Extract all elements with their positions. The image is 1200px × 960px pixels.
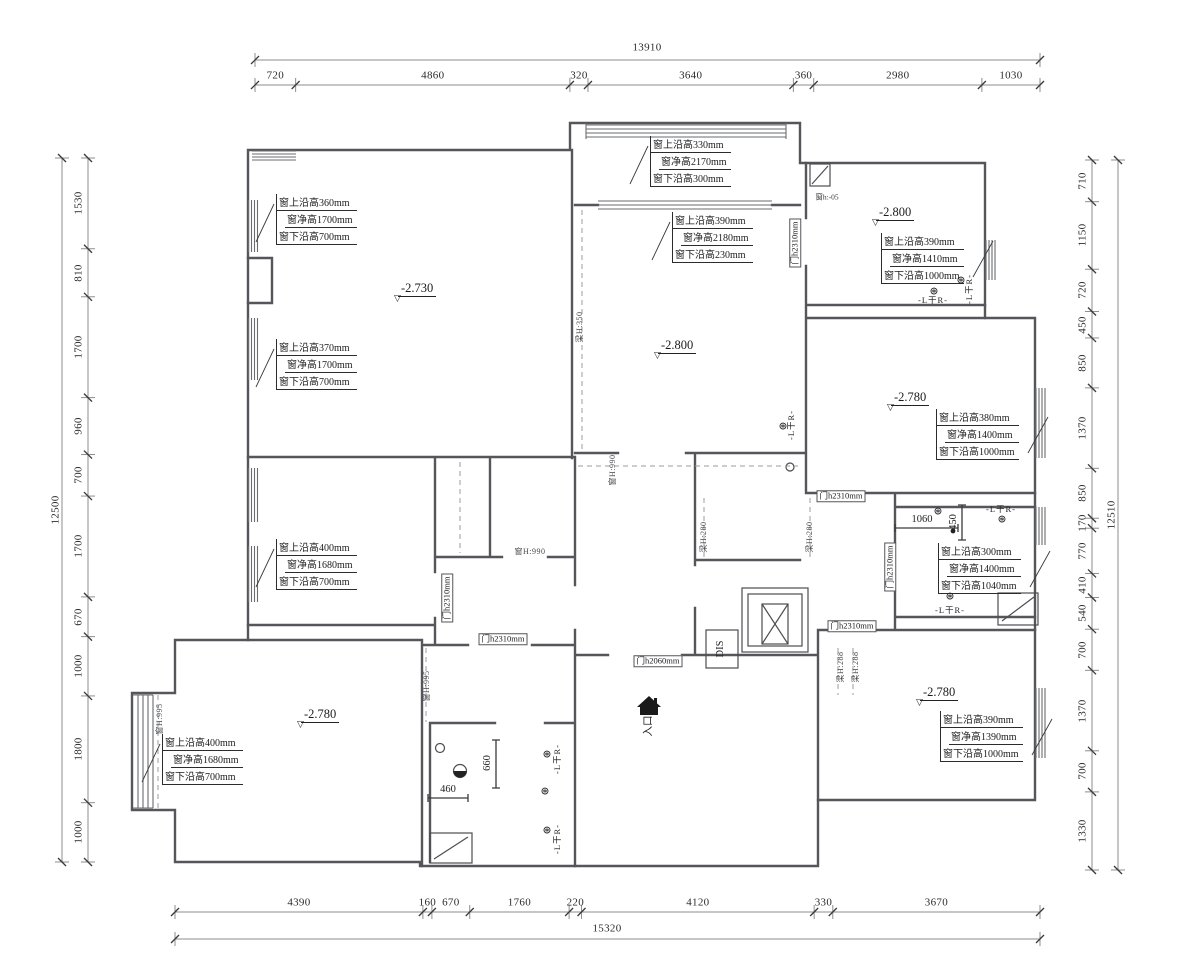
- window-note-line: 窗下沿高1000mm: [937, 443, 1019, 460]
- radiator-label: -L干R-: [965, 274, 974, 304]
- window-note-line: 窗净高2170mm: [659, 153, 731, 170]
- radiator-label: -L干R-: [935, 606, 965, 615]
- window-note-line: 窗上沿高370mm: [277, 339, 357, 356]
- dim-segment-label: 160: [419, 898, 436, 909]
- elevation-value: -2.780: [301, 707, 339, 723]
- dim-segment-label: 3640: [679, 71, 702, 82]
- beam-label: 梁H:288: [837, 652, 845, 683]
- elevation-marker: ▽-2.730: [398, 281, 436, 296]
- small-dim-label: 660: [483, 755, 494, 771]
- dim-total-label: 12500: [51, 496, 62, 525]
- dim-segment-label: 320: [570, 71, 587, 82]
- window-note-line: 窗上沿高390mm: [673, 212, 753, 229]
- dim-segment-label: 410: [1078, 577, 1089, 594]
- radiator-label: -L干R-: [787, 410, 796, 440]
- beam-label: 梁H:280: [806, 522, 814, 553]
- radiator-icon: ⊛: [945, 592, 954, 603]
- dim-segment-label: 1760: [508, 898, 531, 909]
- window-note-line: 窗上沿高380mm: [937, 409, 1019, 426]
- dim-segment-label: 3670: [925, 898, 948, 909]
- door-label: 门h2310mm: [817, 490, 866, 502]
- dim-segment-label: 1700: [74, 336, 85, 359]
- window-note: 窗上沿高390mm窗净高1410mm窗下沿高1000mm: [881, 233, 964, 284]
- dim-segment-label: 1150: [1078, 224, 1089, 247]
- window-note-line: 窗下沿高700mm: [163, 768, 243, 785]
- window-note: 窗上沿高300mm窗净高1400mm窗下沿高1040mm: [938, 543, 1021, 594]
- window-note: 窗上沿高380mm窗净高1400mm窗下沿高1000mm: [936, 409, 1019, 460]
- radiator-icon: ⊛: [997, 515, 1006, 526]
- small-dim-label: 1060: [912, 515, 933, 526]
- beam-label: 窗H:990: [609, 455, 617, 486]
- door-label: 门h2310mm: [789, 219, 801, 268]
- door-label: 门h2310mm: [441, 574, 453, 623]
- dim-total-label: 12510: [1107, 501, 1118, 530]
- elevation-triangle-icon: ▽: [872, 217, 879, 228]
- radiator-label: -L干R-: [986, 505, 1016, 514]
- elevation-value: -2.800: [876, 205, 914, 221]
- elevation-value: -2.730: [398, 281, 436, 297]
- dim-segment-label: 720: [1078, 282, 1089, 299]
- dim-segment-label: 700: [74, 467, 85, 484]
- dim-segment-label: 4390: [287, 898, 310, 909]
- window-note-line: 窗下沿高1000mm: [941, 745, 1023, 762]
- window-tag-label: 窗h:-05: [815, 193, 838, 201]
- window-note-line: 窗净高1410mm: [890, 250, 964, 267]
- dim-segment-label: 2980: [886, 71, 909, 82]
- dim-segment-label: 1000: [74, 655, 85, 678]
- window-note-line: 窗净高1700mm: [285, 211, 357, 228]
- window-note-line: 窗上沿高400mm: [277, 539, 357, 556]
- beam-label: 窗H:995: [423, 671, 431, 702]
- beam-label: 梁H:288: [852, 652, 860, 683]
- elevation-marker: ▽-2.780: [891, 390, 929, 405]
- elevation-value: -2.780: [920, 685, 958, 701]
- dim-segment-label: 1000: [74, 821, 85, 844]
- elevation-triangle-icon: ▽: [297, 719, 304, 730]
- dim-segment-label: 1030: [999, 71, 1022, 82]
- dim-segment-label: 1330: [1078, 819, 1089, 842]
- radiator-label: -L干R-: [553, 744, 562, 774]
- window-note-line: 窗净高1700mm: [285, 356, 357, 373]
- window-note: 窗上沿高390mm窗净高1390mm窗下沿高1000mm: [940, 711, 1023, 762]
- small-dim-label: 460: [440, 785, 456, 796]
- window-note-line: 窗上沿高300mm: [939, 543, 1021, 560]
- floor-plan-canvas: 7204860320364036029801030139104390160670…: [0, 0, 1200, 960]
- elevation-value: -2.800: [658, 338, 696, 354]
- radiator-icon: ⊛: [542, 826, 551, 837]
- radiator-icon: ⊛: [933, 507, 942, 518]
- radiator-label: -L干R-: [553, 824, 562, 854]
- door-label: 门h2060mm: [634, 655, 683, 667]
- dim-segment-label: 360: [795, 71, 812, 82]
- entry-label: 入口: [644, 716, 655, 737]
- dim-segment-label: 330: [815, 898, 832, 909]
- dim-segment-label: 670: [74, 608, 85, 625]
- window-note-line: 窗下沿高230mm: [673, 246, 753, 263]
- dis-label: DIS: [716, 641, 727, 658]
- dim-segment-label: 1800: [74, 738, 85, 761]
- window-note-line: 窗净高1680mm: [285, 556, 357, 573]
- window-note: 窗上沿高390mm窗净高2180mm窗下沿高230mm: [672, 212, 753, 263]
- elevation-triangle-icon: ▽: [887, 402, 894, 413]
- door-label: 门h2310mm: [479, 633, 528, 645]
- dim-segment-label: 4860: [421, 71, 444, 82]
- dim-segment-label: 1530: [74, 192, 85, 215]
- dim-segment-label: 1370: [1078, 416, 1089, 439]
- beam-label: 梁H:350: [576, 312, 584, 343]
- beam-label: 窗H:995: [156, 704, 164, 735]
- elevation-triangle-icon: ▽: [654, 350, 661, 361]
- dim-segment-label: 220: [567, 898, 584, 909]
- window-note-line: 窗上沿高400mm: [163, 734, 243, 751]
- door-label: 门h2310mm: [828, 620, 877, 632]
- elevation-value: -2.780: [891, 390, 929, 406]
- window-note-line: 窗下沿高700mm: [277, 373, 357, 390]
- dim-segment-label: 700: [1078, 763, 1089, 780]
- window-note-line: 窗净高2180mm: [681, 229, 753, 246]
- dim-segment-label: 770: [1078, 542, 1089, 559]
- dim-segment-label: 1700: [74, 535, 85, 558]
- beam-label: 梁H:280: [700, 522, 708, 553]
- elevation-marker: ▽-2.800: [658, 338, 696, 353]
- radiator-label: -L干R-: [918, 296, 948, 305]
- dim-segment-label: 1370: [1078, 699, 1089, 722]
- window-note: 窗上沿高370mm窗净高1700mm窗下沿高700mm: [276, 339, 357, 390]
- window-note-line: 窗净高1400mm: [945, 426, 1019, 443]
- dim-total-label: 13910: [633, 43, 662, 54]
- window-note: 窗上沿高330mm窗净高2170mm窗下沿高300mm: [650, 136, 731, 187]
- dim-segment-label: 170: [1078, 515, 1089, 532]
- small-dim-label: 450: [949, 514, 960, 530]
- radiator-icon: ⊛: [540, 787, 549, 798]
- dim-segment-label: 450: [1078, 316, 1089, 333]
- dim-segment-label: 710: [1078, 172, 1089, 189]
- dim-segment-label: 540: [1078, 605, 1089, 622]
- window-note-line: 窗上沿高360mm: [277, 194, 357, 211]
- window-note: 窗上沿高400mm窗净高1680mm窗下沿高700mm: [276, 539, 357, 590]
- window-note-line: 窗下沿高700mm: [277, 228, 357, 245]
- window-note-line: 窗下沿高300mm: [651, 170, 731, 187]
- dim-segment-label: 850: [1078, 485, 1089, 502]
- window-note-line: 窗净高1390mm: [949, 728, 1023, 745]
- dim-segment-label: 720: [267, 71, 284, 82]
- dim-total-label: 15320: [593, 924, 622, 935]
- elevation-marker: ▽-2.780: [920, 685, 958, 700]
- window-note-line: 窗下沿高700mm: [277, 573, 357, 590]
- window-note-line: 窗净高1680mm: [171, 751, 243, 768]
- window-note-line: 窗上沿高330mm: [651, 136, 731, 153]
- elevation-marker: ▽-2.780: [301, 707, 339, 722]
- radiator-icon: ⊛: [542, 750, 551, 761]
- beam-label: 窗H:990: [515, 548, 546, 556]
- dim-segment-label: 810: [74, 264, 85, 281]
- window-note-line: 窗净高1400mm: [947, 560, 1021, 577]
- labels-layer: 7204860320364036029801030139104390160670…: [0, 0, 1200, 960]
- elevation-triangle-icon: ▽: [916, 697, 923, 708]
- elevation-triangle-icon: ▽: [394, 293, 401, 304]
- elevation-marker: ▽-2.800: [876, 205, 914, 220]
- dim-segment-label: 700: [1078, 641, 1089, 658]
- dim-segment-label: 960: [74, 417, 85, 434]
- dim-segment-label: 670: [442, 898, 459, 909]
- door-label: 门h2310mm: [884, 543, 896, 592]
- window-note-line: 窗上沿高390mm: [882, 233, 964, 250]
- window-note: 窗上沿高360mm窗净高1700mm窗下沿高700mm: [276, 194, 357, 245]
- dim-segment-label: 850: [1078, 354, 1089, 371]
- dim-segment-label: 4120: [686, 898, 709, 909]
- window-note: 窗上沿高400mm窗净高1680mm窗下沿高700mm: [162, 734, 243, 785]
- window-note-line: 窗上沿高390mm: [941, 711, 1023, 728]
- window-note-line: 窗下沿高1000mm: [882, 267, 964, 284]
